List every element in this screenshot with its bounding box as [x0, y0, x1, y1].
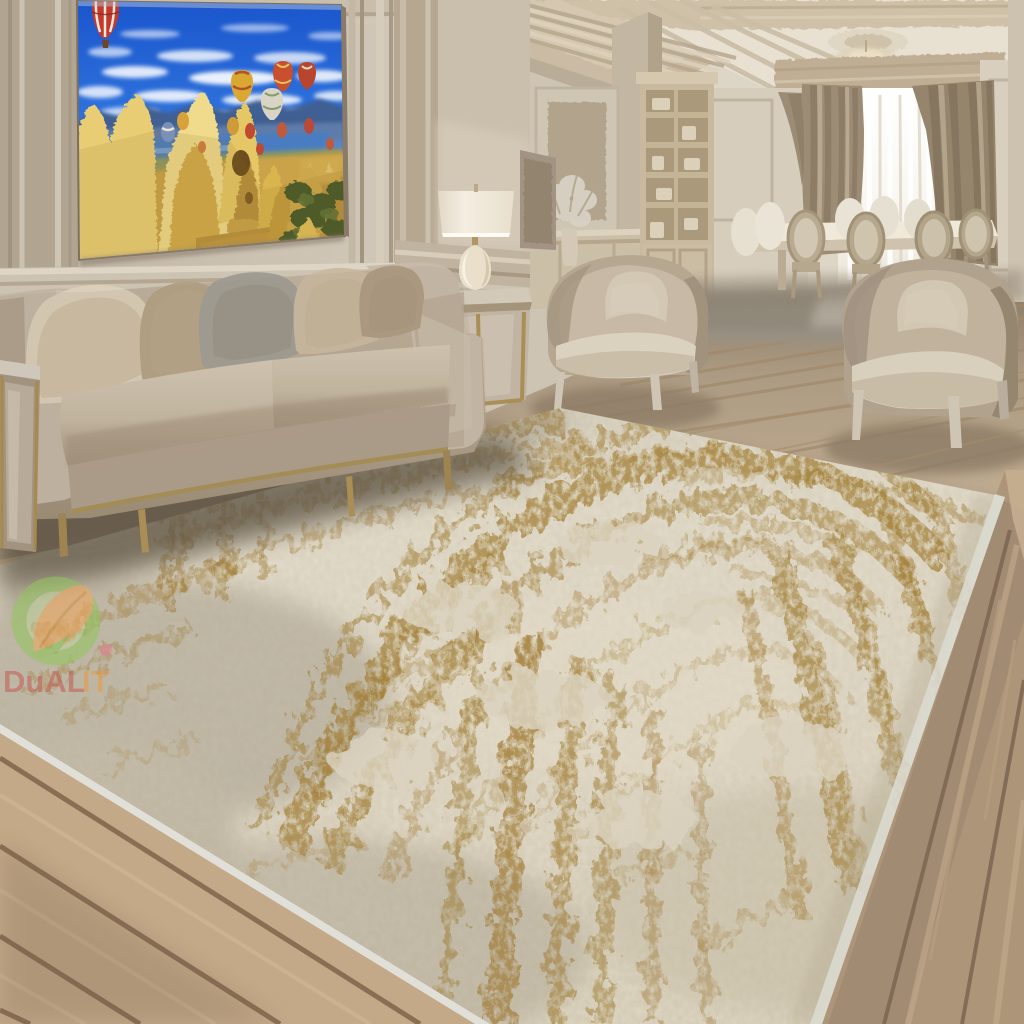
- svg-text:IT: IT: [82, 664, 110, 699]
- svg-text:DuAL: DuAL: [3, 664, 86, 699]
